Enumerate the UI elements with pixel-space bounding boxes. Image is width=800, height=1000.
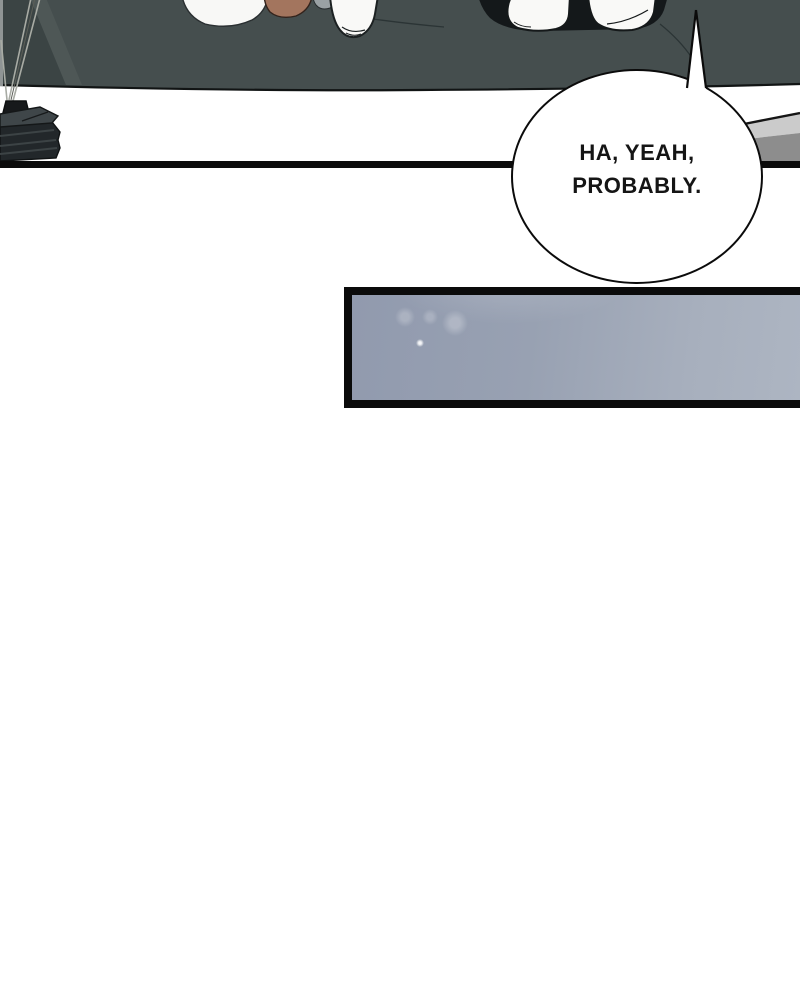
speech-bubble-tail xyxy=(684,8,708,92)
dialogue-line-1: HA, YEAH, xyxy=(572,136,702,169)
flashback-panel xyxy=(344,287,800,408)
white-sock-left xyxy=(507,0,570,31)
dialogue-line-2: PROBABLY. xyxy=(572,169,702,202)
dialogue-text: HA, YEAH, PROBABLY. xyxy=(572,136,702,202)
webtoon-page: HA, YEAH, PROBABLY. xyxy=(0,0,800,1000)
speech-bubble: HA, YEAH, PROBABLY. xyxy=(511,69,763,284)
book-stack xyxy=(0,107,60,161)
